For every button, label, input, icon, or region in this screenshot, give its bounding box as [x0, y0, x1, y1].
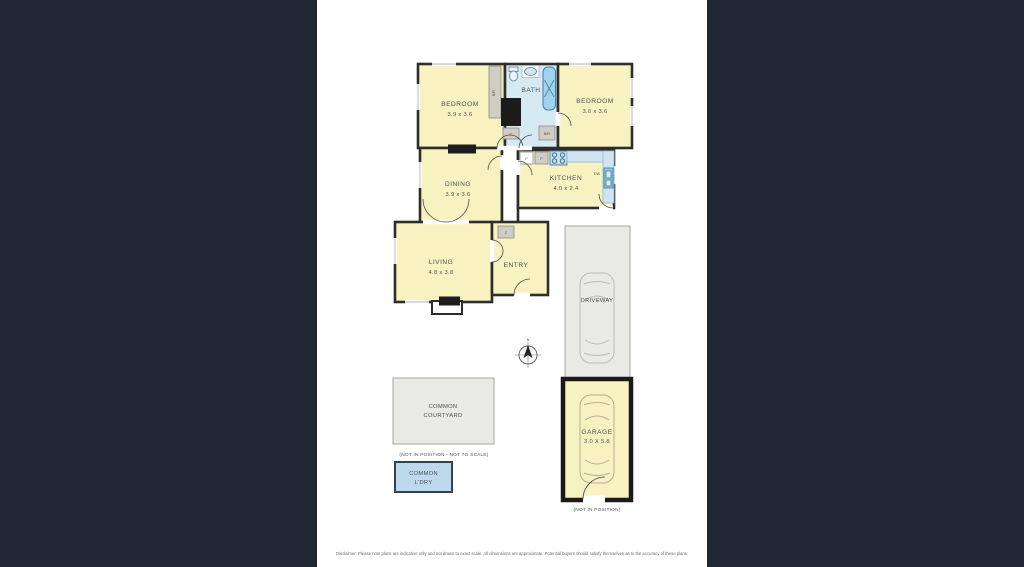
window — [630, 106, 634, 126]
laundry-label-line2: L'DRY — [415, 480, 433, 486]
cooktop-icon — [550, 151, 567, 165]
bathtub-icon — [543, 67, 556, 110]
window — [418, 162, 422, 188]
fireplace-block — [448, 145, 476, 154]
window — [405, 300, 429, 304]
cupboard-bath-label: C — [510, 133, 513, 137]
bedroom-1-dims: 3.9 x 3.6 — [448, 112, 473, 118]
window — [569, 62, 591, 66]
dining-label: DINING — [445, 181, 471, 188]
dishwasher-label: DW — [594, 172, 601, 176]
entry-label: ENTRY — [504, 262, 529, 269]
bedroom-1-label: BEDROOM — [441, 101, 479, 108]
window — [432, 62, 456, 66]
floor-plan: B/R C B/R F P — [317, 0, 707, 567]
kitchen-dims: 4.0 x 2.4 — [554, 186, 579, 192]
kitchen-sink-icon — [604, 168, 613, 188]
hallway — [502, 148, 518, 224]
laundry-area — [395, 462, 452, 492]
chimney-block — [501, 98, 521, 126]
built-in-robe-left: B/R — [489, 66, 501, 118]
courtyard-label-line1: COMMON — [429, 404, 458, 410]
porch-block — [439, 297, 460, 306]
courtyard-note: (NOT IN POSITION - NOT TO SCALE) — [399, 452, 488, 458]
compass-icon: N — [515, 338, 541, 368]
pantry-box: P — [535, 152, 548, 164]
window — [416, 84, 420, 110]
dining-dims: 3.9 x 3.6 — [446, 192, 471, 198]
floorplan-page: B/R C B/R F P — [317, 0, 707, 567]
laundry-label-line1: COMMON — [409, 471, 438, 477]
garage-dims: 3.0 X 5.8 — [584, 439, 610, 445]
screenshot-stage: B/R C B/R F P — [0, 0, 1024, 567]
bedroom-2-label: BEDROOM — [576, 98, 614, 105]
kitchen-label: KITCHEN — [550, 175, 582, 182]
fridge-space: F — [520, 152, 533, 164]
disclaimer-text: Disclaimer: Please note plans are indica… — [336, 551, 688, 556]
driveway-label: DRIVEWAY — [581, 298, 614, 304]
window — [393, 238, 397, 264]
garage-label: GARAGE — [581, 429, 612, 436]
cupboard-entry: C — [498, 226, 514, 238]
living-label: LIVING — [429, 259, 454, 266]
basin-icon — [522, 66, 539, 78]
bedroom-2-room — [558, 64, 632, 148]
built-in-robe-right: B/R — [539, 126, 555, 140]
living-dims: 4.8 x 3.8 — [429, 270, 454, 276]
cupboard-entry-label: C — [505, 231, 508, 235]
bath-label: BATH — [521, 87, 540, 94]
courtyard-label-line2: COURTYARD — [424, 413, 463, 419]
cupboard-bath: C — [503, 128, 519, 139]
compass-north-label: N — [527, 338, 530, 342]
robe-right-label: B/R — [544, 132, 550, 136]
toilet-icon — [509, 67, 518, 81]
courtyard-area — [393, 378, 494, 444]
garage-note: (NOT IN POSITION) — [573, 507, 620, 513]
window — [630, 78, 634, 98]
robe-left-label: B/R — [492, 90, 496, 96]
bedroom-2-dims: 3.0 x 3.6 — [583, 109, 608, 115]
